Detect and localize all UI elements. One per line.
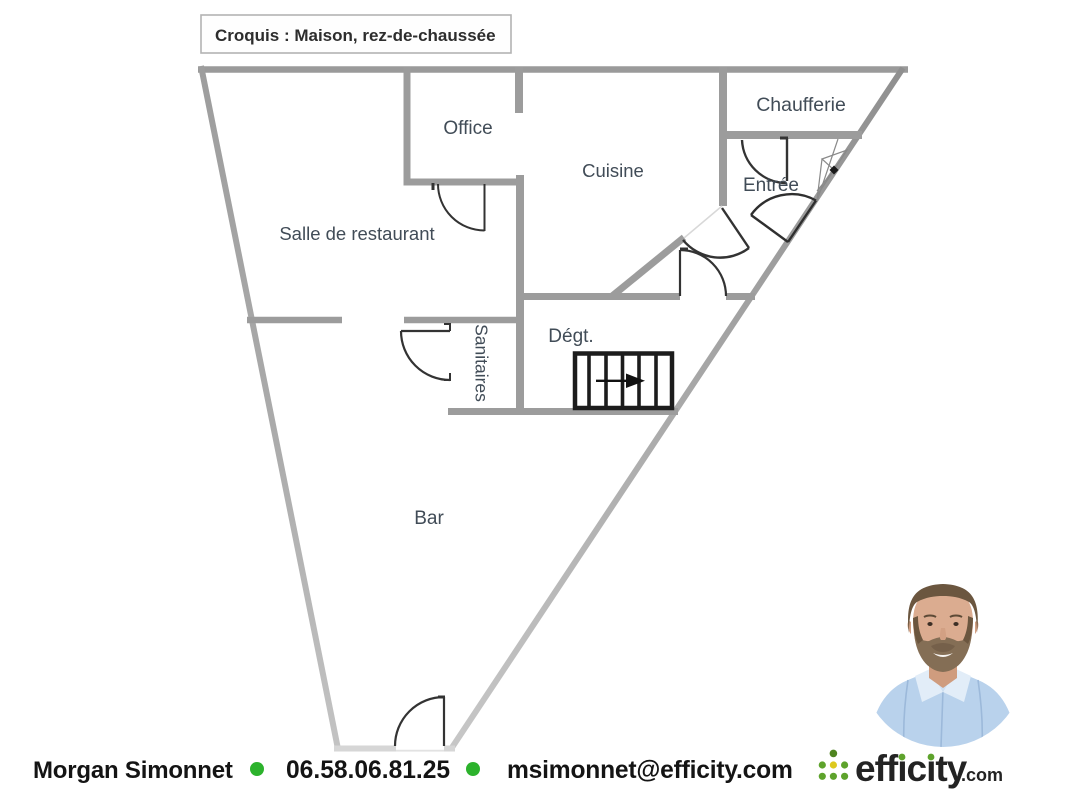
svg-text:Dégt.: Dégt. (548, 326, 593, 347)
svg-text:Cuisine: Cuisine (582, 160, 644, 181)
svg-text:Morgan Simonnet: Morgan Simonnet (33, 757, 233, 784)
svg-text:.com: .com (961, 765, 1003, 785)
svg-text:Chaufferie: Chaufferie (756, 94, 846, 116)
svg-text:msimonnet@efficity.com: msimonnet@efficity.com (507, 757, 793, 784)
svg-text:Croquis : Maison, rez-de-chaus: Croquis : Maison, rez-de-chaussée (215, 26, 496, 45)
svg-text:Salle de restaurant: Salle de restaurant (279, 223, 434, 244)
svg-text:Bar: Bar (414, 508, 444, 529)
svg-text:Office: Office (443, 118, 492, 139)
svg-text:06.58.06.81.25: 06.58.06.81.25 (286, 757, 450, 784)
svg-text:Sanitaires: Sanitaires (471, 324, 491, 402)
svg-text:effıcıty: effıcıty (855, 748, 968, 789)
svg-text:Entrée: Entrée (743, 175, 799, 196)
